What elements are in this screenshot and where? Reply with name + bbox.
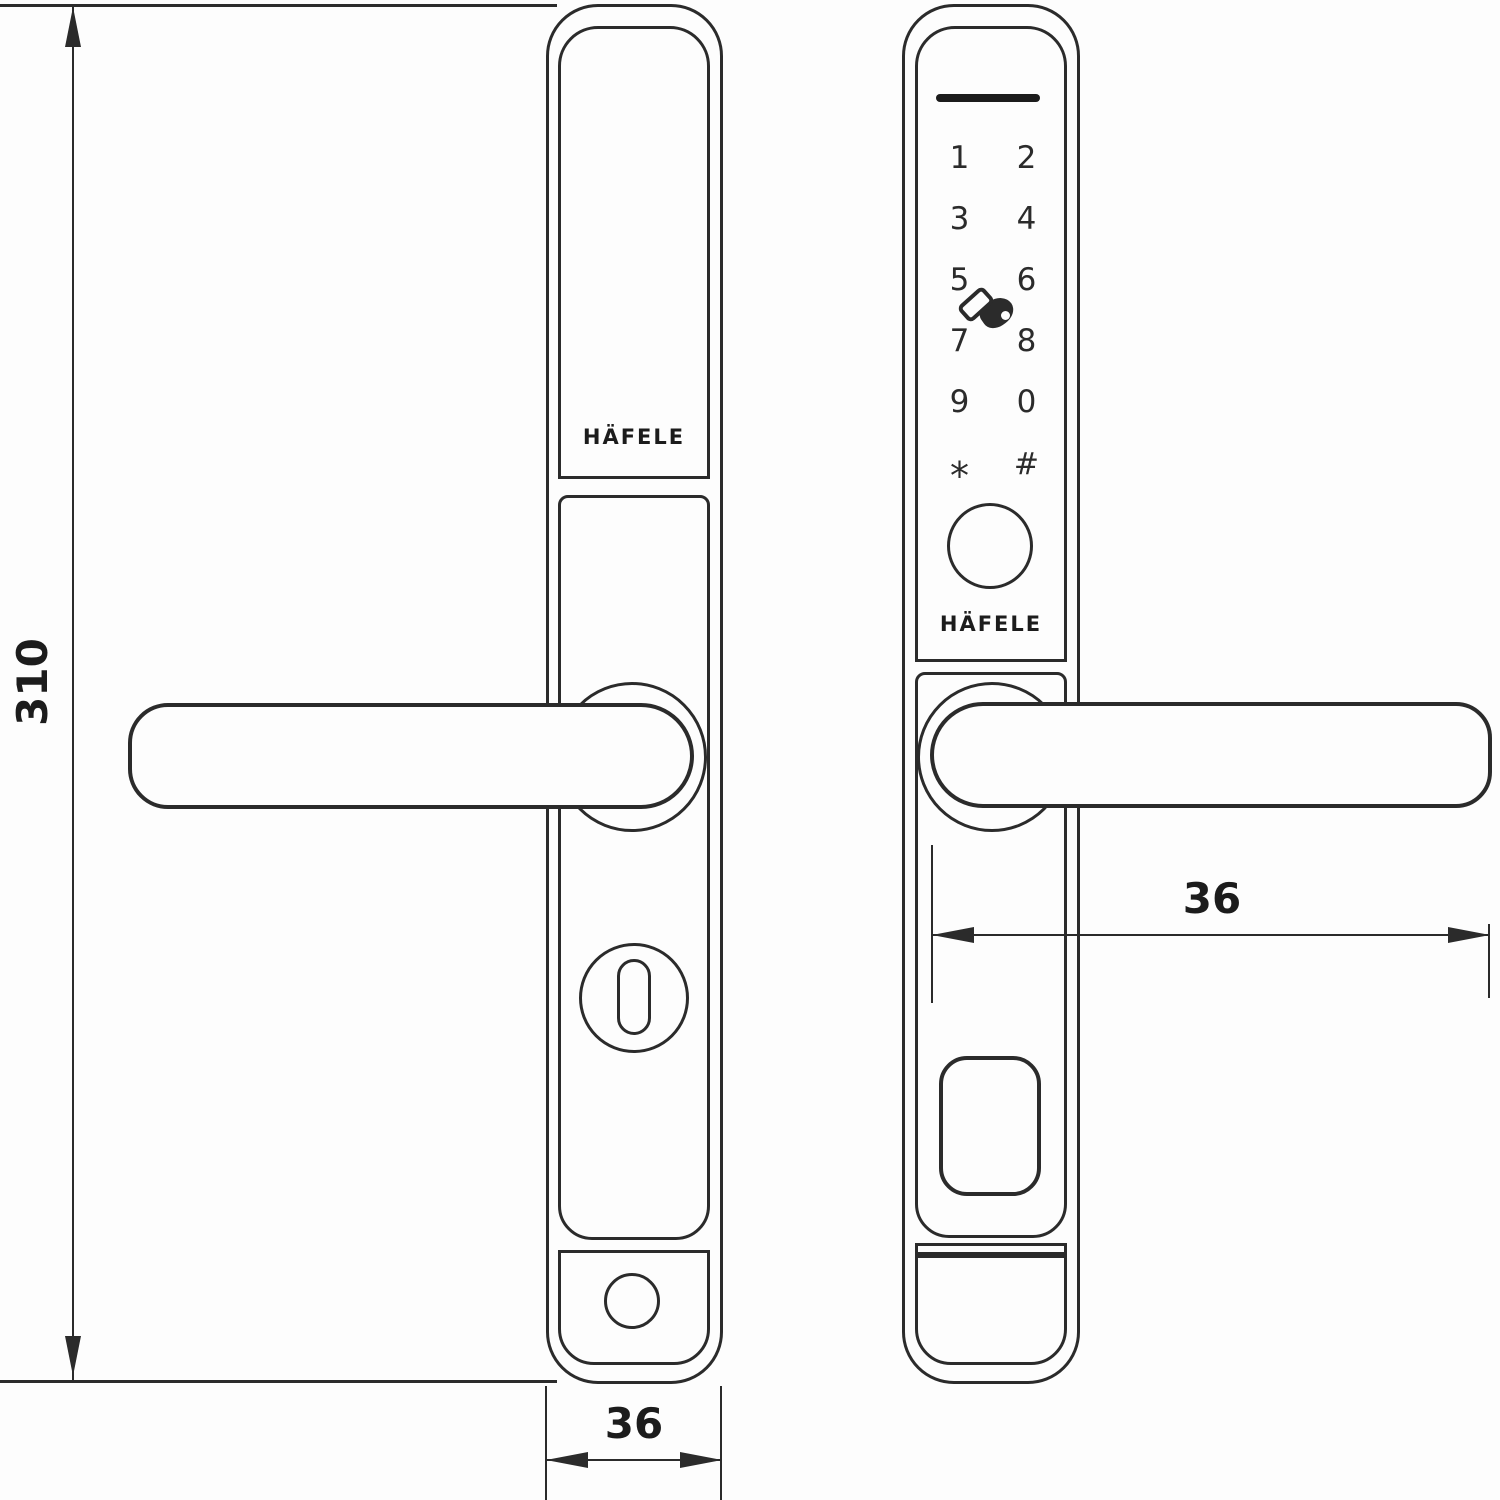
dimension-width-right-label: 36 — [1137, 877, 1287, 921]
technical-drawing-canvas: 310 HÄFELE 36 1 2 3 — [0, 0, 1500, 1500]
arrow-left-icon — [932, 927, 974, 943]
lever-handle — [128, 703, 694, 809]
lever-handle — [930, 702, 1492, 808]
dimension-extension-line-left — [931, 845, 933, 1003]
arrow-right-icon — [1448, 927, 1490, 943]
dimension-line-horizontal — [932, 934, 1490, 936]
